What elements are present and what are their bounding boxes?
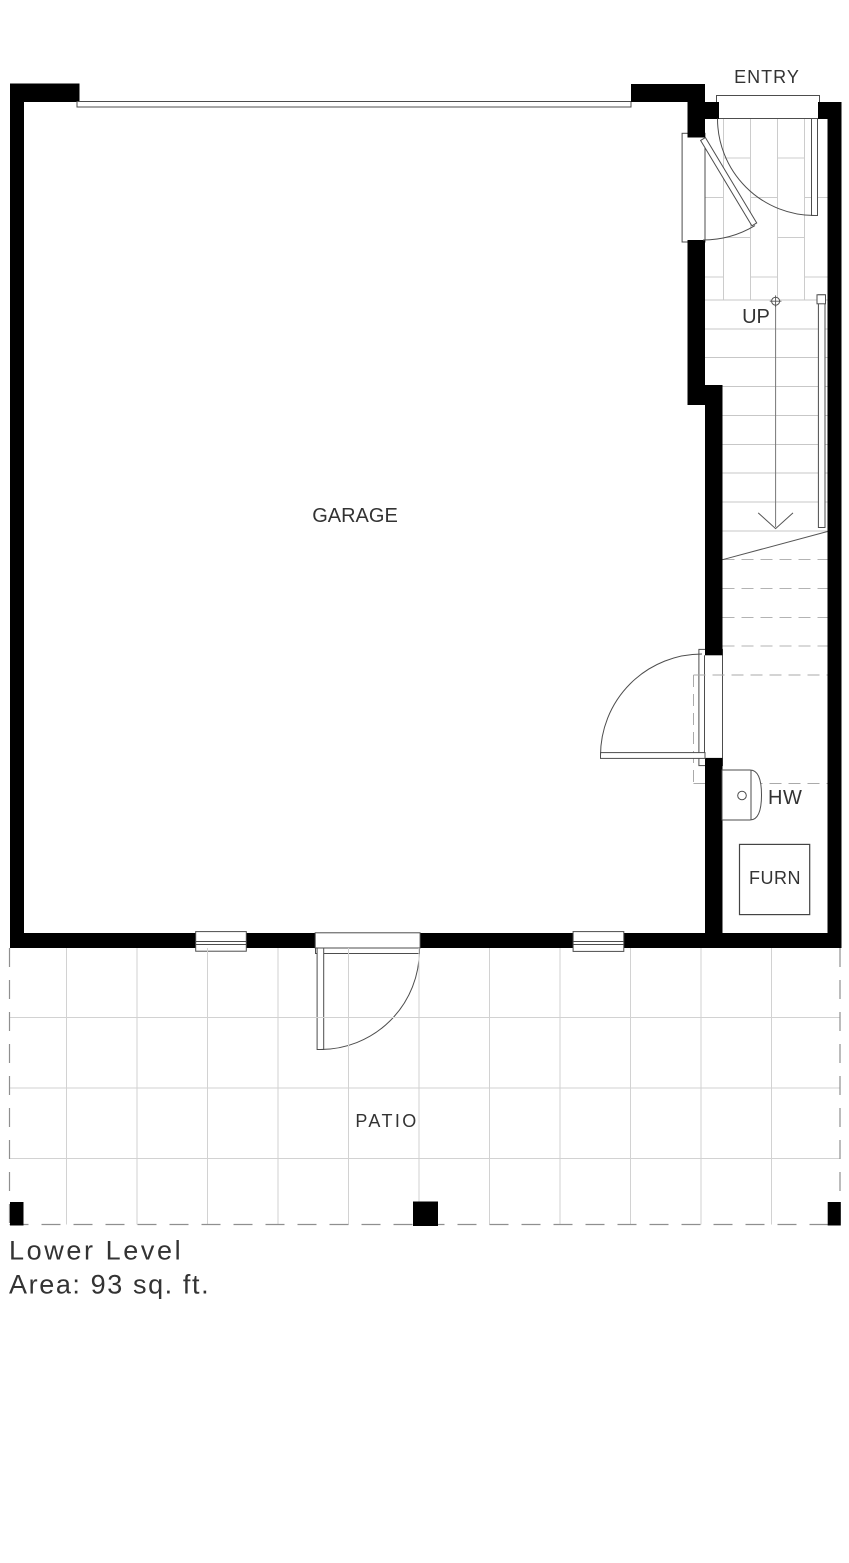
svg-text:FURN: FURN bbox=[749, 868, 801, 888]
svg-text:HW: HW bbox=[768, 787, 802, 809]
svg-text:Area: 93 sq. ft.: Area: 93 sq. ft. bbox=[9, 1270, 210, 1300]
svg-text:ENTRY: ENTRY bbox=[734, 67, 800, 87]
svg-text:Lower Level: Lower Level bbox=[9, 1236, 183, 1266]
svg-text:GARAGE: GARAGE bbox=[312, 505, 398, 527]
svg-text:PATIO: PATIO bbox=[355, 1111, 418, 1131]
svg-text:UP: UP bbox=[742, 306, 770, 328]
